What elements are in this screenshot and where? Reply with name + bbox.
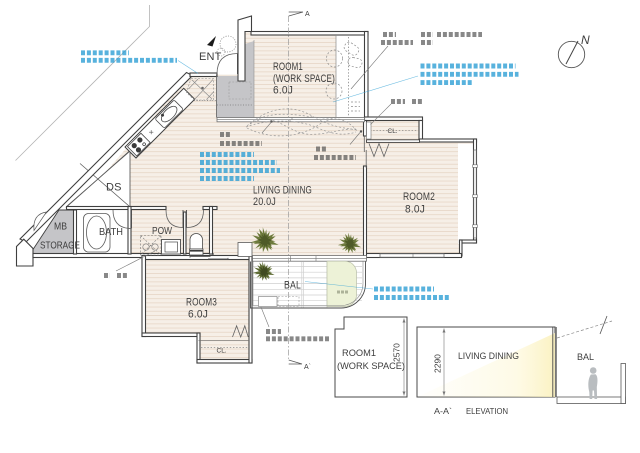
svg-text:STORAGE: STORAGE bbox=[40, 240, 80, 252]
svg-text:20.0J: 20.0J bbox=[253, 196, 276, 208]
svg-text:N: N bbox=[581, 33, 590, 47]
svg-text:ROOM3: ROOM3 bbox=[186, 297, 217, 309]
svg-text:BAL: BAL bbox=[284, 280, 301, 292]
svg-text:(WORK SPACE): (WORK SPACE) bbox=[337, 361, 405, 372]
svg-text:BAL: BAL bbox=[577, 352, 594, 363]
svg-text:ELEVATION: ELEVATION bbox=[466, 406, 508, 416]
svg-text:ROOM1: ROOM1 bbox=[342, 348, 376, 359]
svg-text:ROOM1: ROOM1 bbox=[273, 61, 303, 73]
svg-text:CL.: CL. bbox=[388, 128, 398, 135]
svg-text:A`: A` bbox=[304, 364, 311, 371]
svg-text:POW: POW bbox=[152, 225, 172, 237]
svg-text:(WORK SPACE): (WORK SPACE) bbox=[273, 73, 335, 85]
svg-text:6.0J: 6.0J bbox=[273, 85, 293, 97]
svg-text:8.0J: 8.0J bbox=[405, 204, 425, 216]
svg-text:2570: 2570 bbox=[392, 343, 402, 362]
svg-text:LIVING DINING: LIVING DINING bbox=[458, 351, 519, 362]
svg-text:LIVING DINING: LIVING DINING bbox=[253, 185, 312, 197]
svg-text:ROOM2: ROOM2 bbox=[403, 191, 435, 203]
svg-text:BATH: BATH bbox=[99, 226, 123, 238]
svg-text:2290: 2290 bbox=[433, 354, 443, 373]
svg-text:DS: DS bbox=[106, 182, 122, 194]
svg-text:MB: MB bbox=[54, 221, 67, 233]
svg-text:A-A`: A-A` bbox=[434, 406, 452, 416]
svg-text:A: A bbox=[305, 11, 310, 18]
svg-text:ENT: ENT bbox=[199, 51, 222, 63]
svg-text:6.0J: 6.0J bbox=[188, 309, 208, 321]
svg-text:CL.: CL. bbox=[217, 348, 227, 355]
